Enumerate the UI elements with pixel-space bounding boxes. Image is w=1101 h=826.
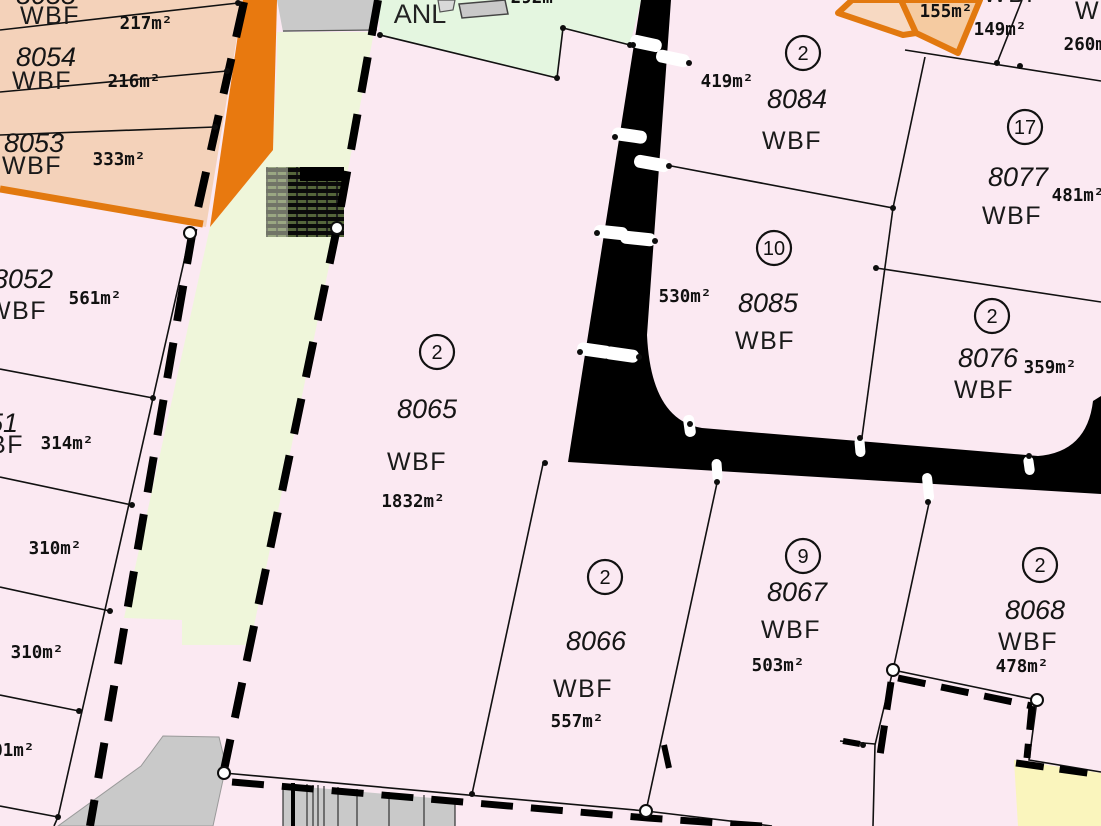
parcel-8066-number: 8066 — [566, 626, 627, 656]
hedge-texture-dark — [300, 167, 344, 181]
parcel-8085-area: 530m² — [659, 287, 712, 307]
parcel-8084-number: 8084 — [767, 84, 827, 114]
parcel-8066-area: 557m² — [551, 712, 604, 732]
parcel-8068-lot: 2 — [1034, 555, 1045, 577]
top-road-gray — [277, 0, 377, 32]
parcel-8065-use: WBF — [387, 448, 447, 476]
parcel-149-use: WBF — [983, 0, 1043, 8]
parcel-8077-use: WBF — [982, 202, 1042, 230]
parcel-8055-use: WBF — [20, 2, 80, 30]
parcel-8068-number: 8068 — [1005, 595, 1065, 625]
building-footprint — [459, 0, 508, 18]
parcel-8085-use: WBF — [735, 327, 795, 355]
parcel-260-use: WBF — [1075, 0, 1101, 25]
parcel-8065-number: 8065 — [397, 394, 458, 424]
parcel-8052-use: WBF — [0, 297, 47, 325]
parcel-8084-lot: 2 — [797, 43, 808, 65]
parcel-8053-area: 333m² — [93, 150, 146, 170]
parcel-8054-area: 216m² — [108, 72, 161, 92]
parcel-301-area: 301m² — [0, 741, 34, 761]
parcel-8076-lot: 2 — [986, 306, 997, 328]
parcel-310b-area: 310m² — [11, 643, 64, 663]
anl-label: ANL — [394, 0, 447, 29]
parcel-8076-number: 8076 — [958, 343, 1019, 373]
parcel-8052-area: 561m² — [69, 289, 122, 309]
parcel-8077-lot: 17 — [1014, 117, 1036, 139]
parcel-8055-area: 217m² — [120, 14, 173, 34]
parcel-8051-use: WBF — [0, 431, 24, 459]
parcel-310a-area: 310m² — [29, 539, 82, 559]
parcel-8067-number: 8067 — [767, 577, 828, 607]
parcel-8053-use: WBF — [2, 152, 62, 180]
parcel-8068-use: WBF — [998, 628, 1058, 656]
cadastral-map-canvas[interactable]: 8055 WBF 217m² 8054 WBF 216m² 8053 WBF 3… — [0, 0, 1101, 826]
parcel-8076-use: WBF — [954, 376, 1014, 404]
parcel-8067-use: WBF — [761, 616, 821, 644]
parcel-8067-lot: 9 — [797, 546, 808, 568]
parcel-8076-area: 359m² — [1024, 358, 1077, 378]
parcel-8084-area: 419m² — [701, 72, 754, 92]
cadastral-map-viewport[interactable]: 8055 WBF 217m² 8054 WBF 216m² 8053 WBF 3… — [0, 0, 1101, 826]
parcel-8065-area: 1832m² — [381, 492, 444, 512]
parcel-155-area: 155m² — [920, 2, 973, 22]
parcel-8077-area: 481m² — [1052, 186, 1101, 206]
parcel-8085-number: 8085 — [738, 288, 799, 318]
parcel-292-area: 292m² — [511, 0, 564, 8]
parcel-8068-area: 478m² — [996, 657, 1049, 677]
parcel-8065-lot: 2 — [431, 342, 442, 364]
parcel-260-area: 260m² — [1064, 35, 1101, 55]
parcel-149-area: 149m² — [974, 20, 1027, 40]
parcel-8051-area: 314m² — [41, 434, 94, 454]
parcel-8066-lot: 2 — [599, 567, 610, 589]
parcel-8077-number: 8077 — [988, 162, 1049, 192]
parcel-8066-use: WBF — [553, 675, 613, 703]
parcel-8052-number: 8052 — [0, 264, 53, 294]
parcel-8085-lot: 10 — [763, 238, 785, 260]
hedge-texture-fade — [266, 167, 288, 237]
parcel-8084-use: WBF — [762, 127, 822, 155]
parcel-8067-area: 503m² — [752, 656, 805, 676]
parcel-8054-use: WBF — [12, 67, 72, 95]
